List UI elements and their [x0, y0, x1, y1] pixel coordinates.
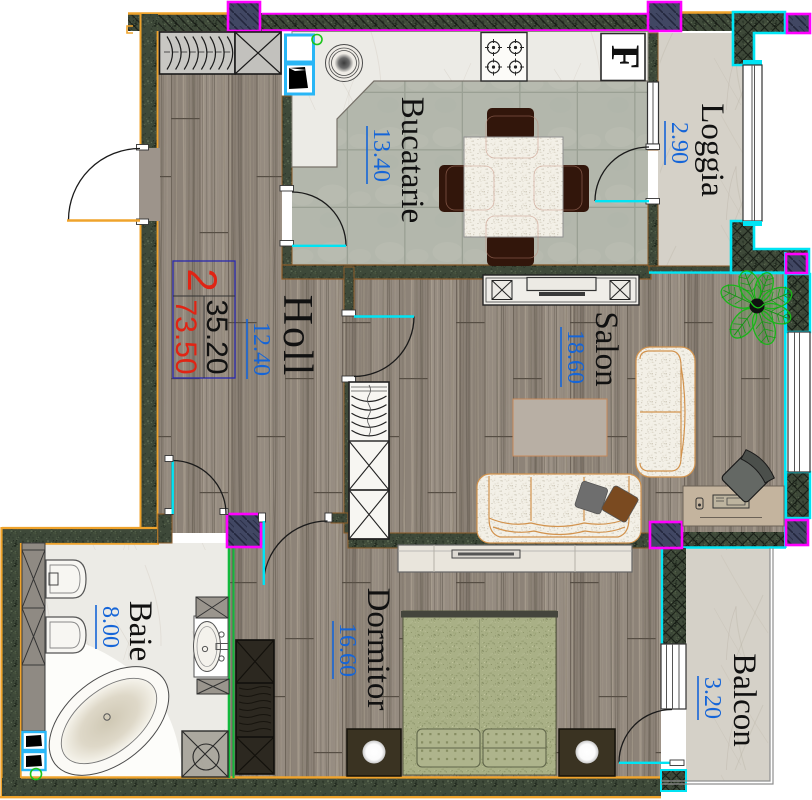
- svg-text:18.60: 18.60: [562, 330, 588, 384]
- svg-text:Balcon: Balcon: [726, 653, 762, 746]
- svg-text:F: F: [603, 45, 648, 69]
- svg-text:Loggia: Loggia: [694, 103, 730, 197]
- svg-text:35.20: 35.20: [200, 299, 233, 374]
- svg-text:Holl: Holl: [274, 295, 320, 378]
- svg-text:8.00: 8.00: [97, 606, 123, 648]
- svg-text:13.40: 13.40: [368, 128, 394, 182]
- svg-text:2.90: 2.90: [666, 122, 692, 164]
- svg-text:Dormitor: Dormitor: [360, 588, 396, 711]
- svg-text:12.40: 12.40: [248, 322, 274, 376]
- svg-text:73.50: 73.50: [169, 299, 202, 374]
- svg-text:2: 2: [179, 268, 226, 291]
- svg-text:16.60: 16.60: [334, 623, 360, 677]
- svg-text:Bucatarie: Bucatarie: [394, 97, 430, 223]
- svg-text:3.20: 3.20: [699, 677, 725, 719]
- svg-text:Baie: Baie: [122, 601, 158, 661]
- svg-text:Salon: Salon: [588, 311, 624, 386]
